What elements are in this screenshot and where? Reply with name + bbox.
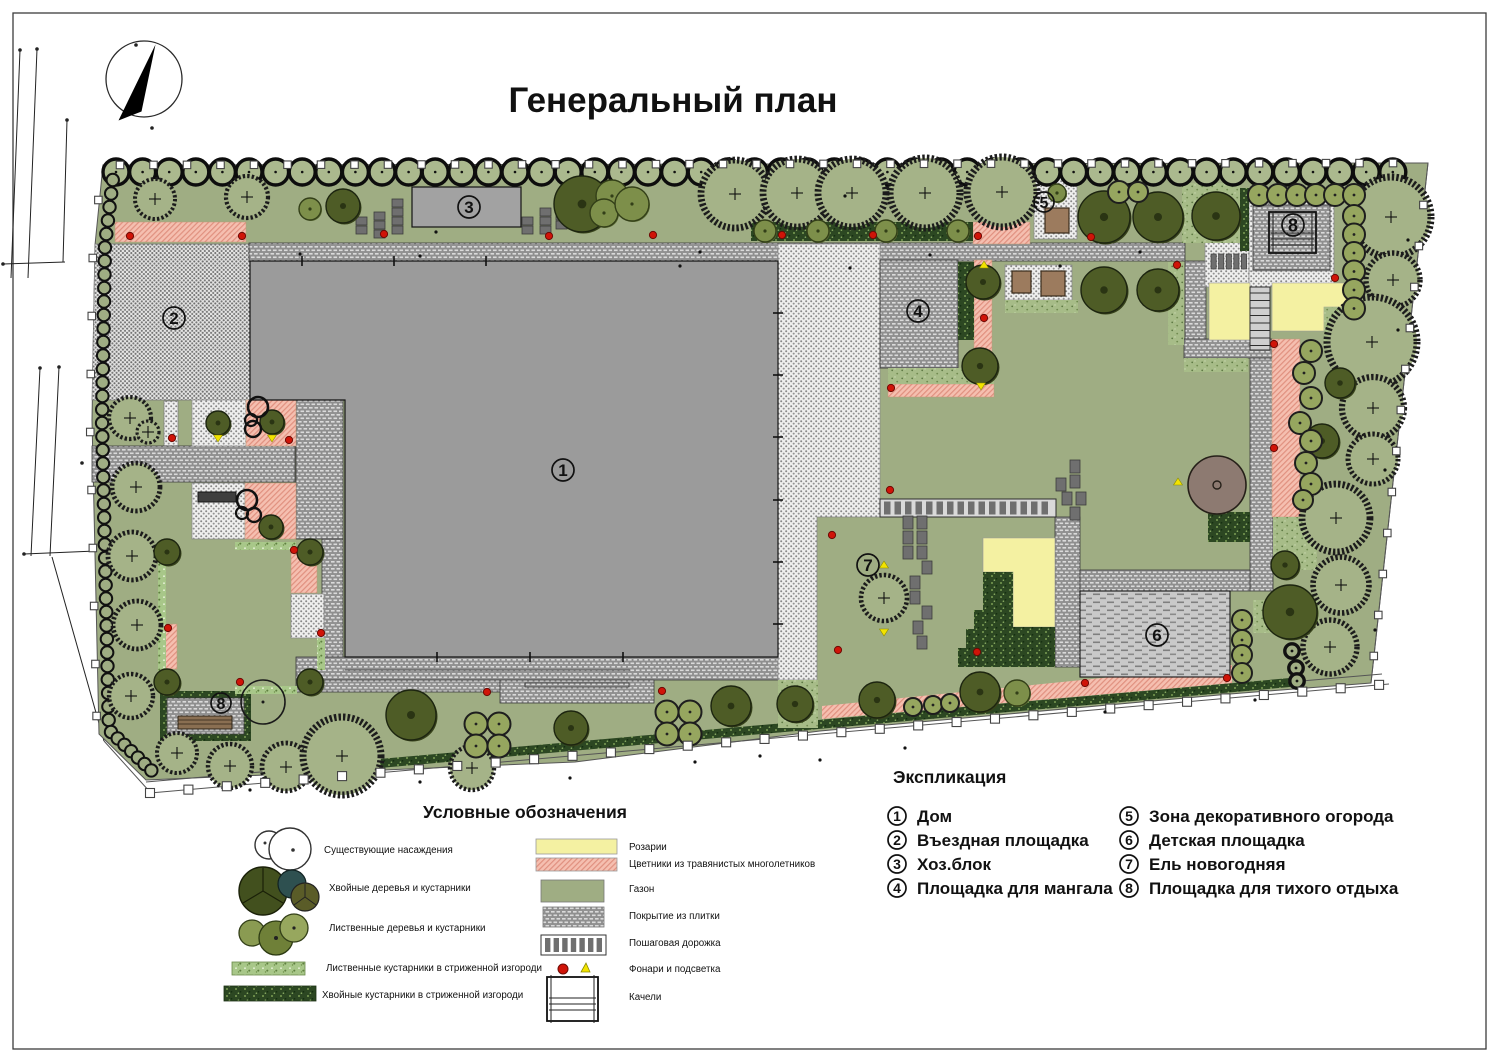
svg-text:Условные обозначения: Условные обозначения [423,802,627,822]
svg-text:Зона декоративного огорода: Зона декоративного огорода [1149,807,1394,826]
svg-text:5: 5 [1040,195,1049,212]
svg-text:Хоз.блок: Хоз.блок [917,855,991,874]
svg-text:8: 8 [217,696,226,713]
svg-text:Существующие насаждения: Существующие насаждения [324,845,453,856]
svg-text:3: 3 [893,856,901,872]
svg-text:7: 7 [1125,856,1133,872]
svg-text:Дом: Дом [917,807,952,826]
svg-text:Экспликация: Экспликация [893,767,1006,787]
svg-text:Детская площадка: Детская площадка [1149,831,1305,850]
svg-text:6: 6 [1125,832,1133,848]
svg-text:Хвойные кустарники в стриженно: Хвойные кустарники в стриженной изгороди [322,990,523,1001]
svg-text:Площадка для тихого отдыха: Площадка для тихого отдыха [1149,879,1399,898]
svg-text:Лиственные кустарники в стриже: Лиственные кустарники в стриженной изгор… [326,963,542,974]
svg-text:Хвойные деревья и кустарники: Хвойные деревья и кустарники [329,883,471,894]
svg-text:Лиственные деревья и кустарник: Лиственные деревья и кустарники [329,923,485,934]
svg-text:Качели: Качели [629,992,661,1003]
svg-text:Пошаговая дорожка: Пошаговая дорожка [629,938,721,949]
svg-text:Покрытие из плитки: Покрытие из плитки [629,911,720,922]
svg-text:Газон: Газон [629,884,654,895]
svg-text:Цветники из травянистых многол: Цветники из травянистых многолетников [629,859,815,870]
svg-text:2: 2 [169,309,178,328]
svg-text:2: 2 [893,832,901,848]
svg-text:8: 8 [1288,215,1298,235]
svg-text:Розарии: Розарии [629,842,667,853]
svg-text:7: 7 [863,556,872,575]
svg-text:3: 3 [464,198,473,217]
svg-text:Генеральный план: Генеральный план [509,81,838,120]
svg-text:5: 5 [1125,808,1133,824]
svg-text:4: 4 [913,302,923,321]
svg-text:8: 8 [1125,880,1133,896]
svg-text:Въездная площадка: Въездная площадка [917,831,1089,850]
svg-text:Площадка для мангала: Площадка для мангала [917,879,1113,898]
svg-text:1: 1 [558,461,567,480]
svg-text:6: 6 [1152,626,1161,645]
svg-text:1: 1 [893,808,901,824]
svg-text:4: 4 [893,880,901,896]
svg-text:Фонари и подсветка: Фонари и подсветка [629,964,721,975]
svg-text:Ель новогодняя: Ель новогодняя [1149,855,1286,874]
